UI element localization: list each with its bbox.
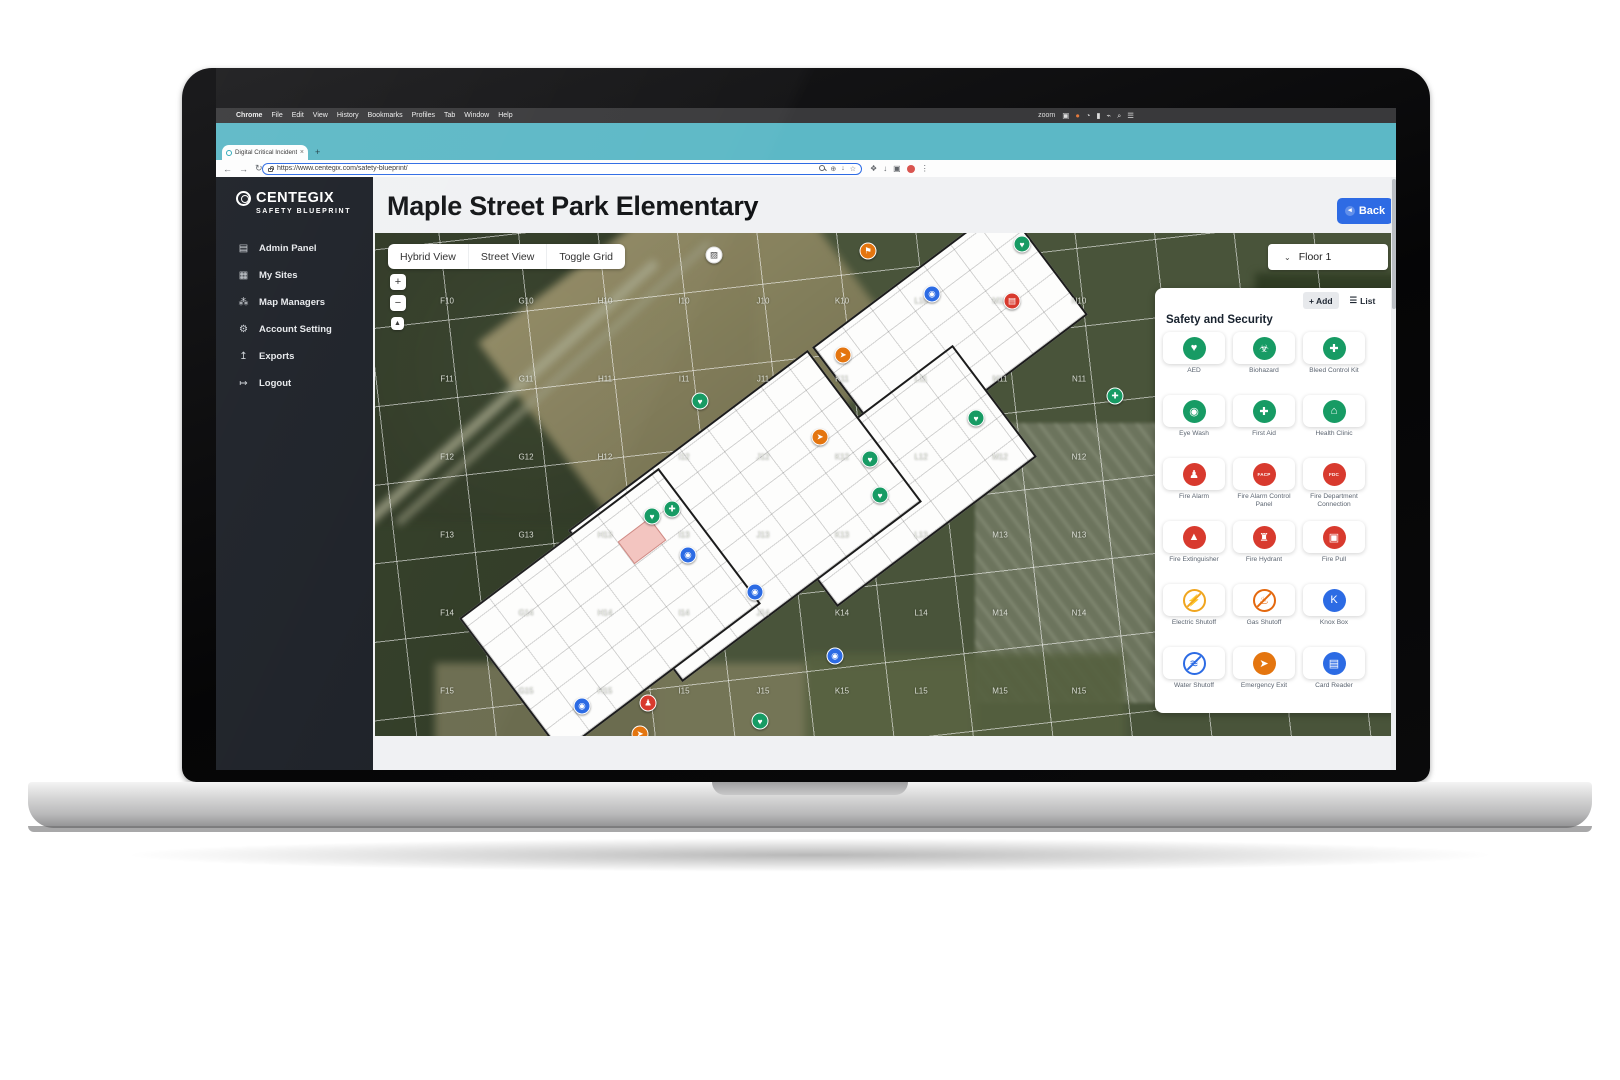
safety-item-label: Gas Shutoff [1233, 619, 1295, 627]
extension-icon[interactable]: ↓ [883, 164, 887, 173]
list-icon: ☰ [1350, 295, 1358, 306]
electric-shutoff-icon: ⚡ [1183, 589, 1206, 612]
grid-cell-label: H10 [598, 297, 613, 306]
safety-item-card: ≋ [1163, 647, 1225, 679]
macos-menu-bar: ChromeFileEditViewHistoryBookmarksProfil… [216, 108, 1396, 123]
browser-window: Digital Critical Incident Mappi × + ← → … [216, 123, 1396, 770]
grid-cell-label: L11 [915, 375, 928, 384]
safety-item-emergency-exit[interactable]: ➤Emergency Exit [1233, 647, 1295, 690]
logo-subtitle: SAFETY BLUEPRINT [256, 208, 373, 215]
grid-cell-label: L13 [914, 531, 927, 540]
safety-item-label: Biohazard [1233, 367, 1295, 375]
page-title: Maple Street Park Elementary [387, 191, 758, 222]
grid-cell-label: J11 [757, 375, 769, 384]
grid-cell-label: G15 [518, 687, 533, 696]
safety-item-card: ♥ [1163, 332, 1225, 364]
grid-cell-label: M13 [992, 531, 1008, 540]
status-icon[interactable]: ▣ [1062, 111, 1069, 121]
aed-marker[interactable]: ♥ [862, 451, 879, 468]
grid-cell-label: K11 [835, 375, 849, 384]
aed-marker[interactable]: ♥ [644, 508, 661, 525]
safety-item-card: ☣ [1233, 332, 1295, 364]
status-icon[interactable]: ◔ [1086, 111, 1091, 121]
bleed-control-kit-icon: ✚ [1323, 337, 1346, 360]
logout-icon: ↦ [238, 378, 249, 389]
fire-department-connection-icon: FDC [1323, 463, 1346, 486]
menu-item-help[interactable]: Help [498, 112, 512, 119]
street-view-button[interactable]: Street View [469, 244, 548, 269]
menu-item-history[interactable]: History [337, 112, 359, 119]
grid-cell-label: J15 [757, 687, 770, 696]
safety-item-gas-shutoff[interactable]: ♨Gas Shutoff [1233, 584, 1295, 627]
safety-item-card: ▣ [1303, 521, 1365, 553]
app-sidebar: CENTEGIX SAFETY BLUEPRINT ▤Admin Panel▦M… [216, 177, 373, 770]
safety-item-aed[interactable]: ♥AED [1163, 332, 1225, 375]
menu-items: ChromeFileEditViewHistoryBookmarksProfil… [227, 112, 513, 119]
status-icon[interactable]: ☰ [1127, 111, 1134, 121]
grid-cell-label: I12 [678, 453, 689, 462]
alarm-panel-marker[interactable]: ▤ [1004, 293, 1021, 310]
grid-cell-label: I14 [678, 609, 689, 618]
safety-item-label: Fire Alarm Control Panel [1233, 493, 1295, 509]
eye-wash-icon: ◉ [1183, 400, 1206, 423]
grid-cell-label: J13 [757, 531, 770, 540]
grid-cell-label: N15 [1072, 687, 1087, 696]
chrome-menu-icon[interactable]: ⋮ [921, 164, 929, 173]
grid-cell-label: N14 [1072, 609, 1087, 618]
poi-marker[interactable]: ⚑ [860, 243, 877, 260]
knox-box-icon: K [1323, 589, 1346, 612]
url-text: https://www.centegix.com/safety-blueprin… [277, 165, 815, 172]
grid-cell-label: N11 [1072, 375, 1086, 384]
safety-item-label: Electric Shutoff [1163, 619, 1225, 627]
safety-item-label: Emergency Exit [1233, 682, 1295, 690]
chevron-down-icon: ⌄ [1284, 253, 1291, 262]
back-button-label: Back [1359, 205, 1385, 217]
grid-cell-label: G11 [519, 375, 534, 384]
safety-item-card: ♜ [1233, 521, 1295, 553]
sidebar-item-account-setting[interactable]: ⚙Account Setting [216, 316, 373, 343]
fire-alarm-icon: ♟ [1183, 463, 1206, 486]
grid-cell-label: F12 [440, 453, 454, 462]
sidebar-item-label: Admin Panel [259, 243, 317, 254]
gas-shutoff-icon: ♨ [1253, 589, 1276, 612]
safety-item-fire-pull[interactable]: ▣Fire Pull [1303, 521, 1365, 564]
safety-item-label: Knox Box [1303, 619, 1365, 627]
omnibox-icon[interactable]: ⊕ [830, 165, 836, 173]
safety-item-label: First Aid [1233, 430, 1295, 438]
safety-item-label: Health Clinic [1303, 430, 1365, 438]
safety-item-fire-hydrant[interactable]: ♜Fire Hydrant [1233, 521, 1295, 564]
safety-item-knox-box[interactable]: KKnox Box [1303, 584, 1365, 627]
safety-item-water-shutoff[interactable]: ≋Water Shutoff [1163, 647, 1225, 690]
sidebar-item-admin-panel[interactable]: ▤Admin Panel [216, 235, 373, 262]
floor-selector-value: Floor 1 [1299, 251, 1332, 263]
url-bar[interactable]: https://www.centegix.com/safety-blueprin… [262, 163, 862, 175]
camera-marker[interactable]: ◉ [574, 698, 591, 715]
page-scrollbar[interactable] [1391, 177, 1396, 770]
floor-selector[interactable]: ⌄ Floor 1 [1268, 244, 1388, 270]
grid-cell-label: N13 [1072, 531, 1087, 540]
grid-cell-label: F10 [440, 297, 454, 306]
search-icon[interactable] [819, 165, 825, 171]
safety-item-card: ▤ [1303, 647, 1365, 679]
grid-cell-label: H12 [598, 453, 613, 462]
panel-section-title: Safety and Security [1166, 314, 1273, 326]
aed-marker[interactable]: ♥ [872, 487, 889, 504]
safety-item-label: Eye Wash [1163, 430, 1225, 438]
camera-marker[interactable]: ◉ [827, 648, 844, 665]
fire-pull-icon: ▣ [1323, 526, 1346, 549]
grid-cell-label: G12 [518, 453, 533, 462]
safety-item-fire-extinguisher[interactable]: ▲Fire Extinguisher [1163, 521, 1225, 564]
menu-item-tab[interactable]: Tab [444, 112, 455, 119]
add-button[interactable]: + Add [1303, 292, 1339, 309]
main-area: Maple Street Park Elementary ◂ Back [373, 177, 1396, 770]
laptop-base [28, 782, 1592, 828]
safety-item-first-aid[interactable]: ✚First Aid [1233, 395, 1295, 438]
camera-marker[interactable]: ◉ [680, 547, 697, 564]
sidebar-item-label: Account Setting [259, 324, 332, 335]
safety-item-label: Bleed Control Kit [1303, 367, 1365, 375]
grid-cell-label: F14 [440, 609, 454, 618]
map-recenter-button[interactable]: ▲ [391, 317, 404, 330]
aed-marker[interactable]: ♥ [752, 713, 769, 730]
list-button-label: List [1360, 296, 1375, 306]
grid-cell-label: K14 [835, 609, 849, 618]
safety-item-label: Card Reader [1303, 682, 1365, 690]
photo-marker[interactable]: ▨ [706, 247, 723, 264]
safety-item-label: Fire Hydrant [1233, 556, 1295, 564]
safety-item-card: ♨ [1233, 584, 1295, 616]
safety-item-card-reader[interactable]: ▤Card Reader [1303, 647, 1365, 690]
menu-item-edit[interactable]: Edit [292, 112, 304, 119]
menu-bar-status-icons: zoom ▣●◔▮⌁⌕☰ [1038, 108, 1134, 123]
safety-item-label: Fire Alarm [1163, 493, 1225, 501]
status-icon[interactable]: ● [1075, 111, 1080, 121]
sidebar-item-map-managers[interactable]: ⁂Map Managers [216, 289, 373, 316]
safety-item-health-clinic[interactable]: ⌂Health Clinic [1303, 395, 1365, 438]
grid-cell-label: L15 [914, 687, 927, 696]
grid-cell-label: H15 [598, 687, 613, 696]
bleed-control-marker[interactable]: ✚ [1107, 388, 1124, 405]
grid-cell-label: N10 [1072, 297, 1087, 306]
safety-item-eye-wash[interactable]: ◉Eye Wash [1163, 395, 1225, 438]
grid-cell-label: J14 [757, 609, 770, 618]
bleed-control-marker[interactable]: ✚ [664, 501, 681, 518]
safety-item-card: ➤ [1233, 647, 1295, 679]
status-icon[interactable]: ▮ [1096, 111, 1100, 121]
laptop-base-edge [28, 826, 1592, 832]
omnibox-icon[interactable]: ☆ [850, 165, 856, 173]
slash-overlay [1257, 593, 1272, 608]
back-nav-icon[interactable]: ← [223, 164, 232, 174]
aed-marker[interactable]: ♥ [1014, 236, 1031, 253]
emergency-exit-icon: ➤ [1253, 652, 1276, 675]
stage: ChromeFileEditViewHistoryBookmarksProfil… [0, 0, 1620, 1080]
browser-tab[interactable]: Digital Critical Incident Mappi × [222, 145, 308, 160]
safety-item-card: ◉ [1163, 395, 1225, 427]
account-setting-icon: ⚙ [238, 324, 249, 335]
status-icon[interactable]: ⌁ [1107, 111, 1112, 121]
forward-nav-icon[interactable]: → [239, 164, 248, 174]
grid-cell-label: K15 [835, 687, 849, 696]
safety-item-label: Water Shutoff [1163, 682, 1225, 690]
map-managers-icon: ⁂ [238, 297, 249, 308]
aed-marker[interactable]: ♥ [692, 393, 709, 410]
tab-favicon [226, 150, 232, 156]
toolbar-extension-icons: ❖↓▣ ⋮ [870, 164, 929, 173]
grid-cell-label: L12 [914, 453, 927, 462]
grid-cell-label: F13 [440, 531, 454, 540]
first-aid-icon: ✚ [1253, 400, 1276, 423]
camera-marker[interactable]: ◉ [747, 584, 764, 601]
sidebar-item-label: My Sites [259, 270, 298, 281]
slash-overlay [1187, 593, 1202, 608]
fire-alarm-control-panel-icon: FACP [1253, 463, 1276, 486]
card-reader-icon: ▤ [1323, 652, 1346, 675]
safety-item-electric-shutoff[interactable]: ⚡Electric Shutoff [1163, 584, 1225, 627]
grid-cell-label: M14 [992, 609, 1008, 618]
zoom-in-button[interactable]: + [390, 274, 406, 290]
sidebar-item-label: Exports [259, 351, 294, 362]
fire-alarm-marker[interactable]: ♟ [640, 695, 657, 712]
water-shutoff-icon: ≋ [1183, 652, 1206, 675]
safety-item-card: ▲ [1163, 521, 1225, 553]
lock-icon [268, 168, 273, 172]
new-tab-button[interactable]: + [315, 147, 320, 157]
zoom-menu-label[interactable]: zoom [1038, 112, 1055, 119]
grid-cell-label: M12 [992, 453, 1008, 462]
slash-overlay [1187, 656, 1202, 671]
grid-cell-label: G13 [518, 531, 533, 540]
list-button[interactable]: ☰ List [1344, 292, 1382, 309]
campus-map[interactable]: F10F11F12F13F14F15G10G11G12G13G14G15H10H… [375, 233, 1396, 736]
logo-title: CENTEGIX [256, 190, 334, 206]
fire-hydrant-icon: ♜ [1253, 526, 1276, 549]
health-clinic-icon: ⌂ [1323, 400, 1346, 423]
emergency-exit-marker[interactable]: ➤ [812, 429, 829, 446]
menu-item-bookmarks[interactable]: Bookmarks [368, 112, 403, 119]
emergency-exit-marker[interactable]: ➤ [835, 347, 852, 364]
grid-cell-label: K12 [835, 453, 849, 462]
map-view-controls: Hybrid ViewStreet ViewToggle Grid [388, 244, 625, 269]
safety-item-fire-department-connection[interactable]: FDCFire Department Connection [1303, 458, 1365, 509]
toggle-grid-button[interactable]: Toggle Grid [547, 244, 625, 269]
menu-item-view[interactable]: View [313, 112, 328, 119]
menu-item-window[interactable]: Window [464, 112, 489, 119]
grid-cell-label: I11 [679, 375, 690, 384]
grid-cell-label: K10 [835, 297, 849, 306]
sidebar-item-logout[interactable]: ↦Logout [216, 370, 373, 397]
back-button[interactable]: ◂ Back [1337, 198, 1393, 224]
safety-panel: + Add ☰ List Safety and Security ♥AED☣Bi… [1155, 288, 1396, 713]
aed-icon: ♥ [1183, 337, 1206, 360]
grid-cell-label: F15 [440, 687, 454, 696]
sidebar-item-label: Logout [259, 378, 291, 389]
profile-avatar[interactable] [907, 165, 915, 173]
grid-cell-label: I15 [678, 687, 689, 696]
admin-panel-icon: ▤ [238, 243, 249, 254]
safety-item-label: Fire Department Connection [1303, 493, 1365, 509]
grid-cell-label: L14 [914, 609, 927, 618]
safety-item-card: ✚ [1233, 395, 1295, 427]
aed-marker[interactable]: ♥ [968, 410, 985, 427]
safety-item-biohazard[interactable]: ☣Biohazard [1233, 332, 1295, 375]
camera-marker[interactable]: ◉ [924, 286, 941, 303]
tab-title: Digital Critical Incident Mappi [235, 149, 297, 156]
omnibox-icons: ⊕↓☆ [819, 165, 856, 173]
centegix-logo-icon [236, 191, 251, 206]
menu-item-chrome[interactable]: Chrome [236, 112, 262, 119]
safety-item-label: AED [1163, 367, 1225, 375]
biohazard-icon: ☣ [1253, 337, 1276, 360]
status-icon[interactable]: ⌕ [1117, 111, 1121, 121]
hybrid-view-button[interactable]: Hybrid View [388, 244, 469, 269]
back-button-icon: ◂ [1345, 206, 1355, 216]
grid-cell-label: J12 [757, 453, 770, 462]
grid-cell-label: G10 [518, 297, 533, 306]
laptop-shadow [120, 838, 1500, 872]
centegix-logo: CENTEGIX SAFETY BLUEPRINT [236, 190, 373, 215]
grid-cell-label: J10 [757, 297, 770, 306]
extension-icon[interactable]: ▣ [893, 164, 901, 173]
sidebar-nav: ▤Admin Panel▦My Sites⁂Map Managers⚙Accou… [216, 235, 373, 397]
safety-item-card: FACP [1233, 458, 1295, 490]
fire-extinguisher-icon: ▲ [1183, 526, 1206, 549]
safety-item-fire-alarm-control-panel[interactable]: FACPFire Alarm Control Panel [1233, 458, 1295, 509]
browser-toolbar: ← → ↻ https://www.centegix.com/safety-bl… [216, 160, 1396, 177]
exports-icon: ↥ [238, 351, 249, 362]
grid-cell-label: M11 [993, 375, 1008, 384]
safety-item-label: Fire Pull [1303, 556, 1365, 564]
safety-item-card: ⌂ [1303, 395, 1365, 427]
browser-titlebar: Digital Critical Incident Mappi × + [216, 123, 1396, 160]
safety-item-card: FDC [1303, 458, 1365, 490]
grid-cell-label: H14 [598, 609, 613, 618]
grid-cell-label: G14 [518, 609, 533, 618]
sidebar-item-my-sites[interactable]: ▦My Sites [216, 262, 373, 289]
laptop-notch [712, 782, 908, 795]
safety-item-bleed-control-kit[interactable]: ✚Bleed Control Kit [1303, 332, 1365, 375]
laptop-screen: ChromeFileEditViewHistoryBookmarksProfil… [216, 108, 1396, 770]
app-content: CENTEGIX SAFETY BLUEPRINT ▤Admin Panel▦M… [216, 177, 1396, 770]
grid-cell-label: H11 [598, 375, 612, 384]
menu-item-profiles[interactable]: Profiles [412, 112, 435, 119]
tab-close-icon[interactable]: × [300, 149, 304, 156]
safety-item-fire-alarm[interactable]: ♟Fire Alarm [1163, 458, 1225, 501]
extension-icon[interactable]: ❖ [870, 164, 877, 173]
my-sites-icon: ▦ [238, 270, 249, 281]
sidebar-item-label: Map Managers [259, 297, 325, 308]
safety-item-card: ✚ [1303, 332, 1365, 364]
safety-item-card: ♟ [1163, 458, 1225, 490]
safety-item-label: Fire Extinguisher [1163, 556, 1225, 564]
grid-cell-label: K13 [835, 531, 849, 540]
grid-cell-label: I10 [678, 297, 689, 306]
grid-cell-label: H13 [598, 531, 613, 540]
zoom-out-button[interactable]: − [390, 295, 406, 311]
emergency-exit-marker[interactable]: ➤ [632, 726, 649, 737]
safety-item-card: K [1303, 584, 1365, 616]
grid-cell-label: M15 [992, 687, 1008, 696]
safety-item-card: ⚡ [1163, 584, 1225, 616]
grid-cell-label: N12 [1072, 453, 1087, 462]
grid-cell-label: I13 [678, 531, 689, 540]
menu-item-file[interactable]: File [271, 112, 282, 119]
sidebar-item-exports[interactable]: ↥Exports [216, 343, 373, 370]
grid-cell-label: F11 [440, 375, 453, 384]
omnibox-icon[interactable]: ↓ [841, 165, 845, 173]
